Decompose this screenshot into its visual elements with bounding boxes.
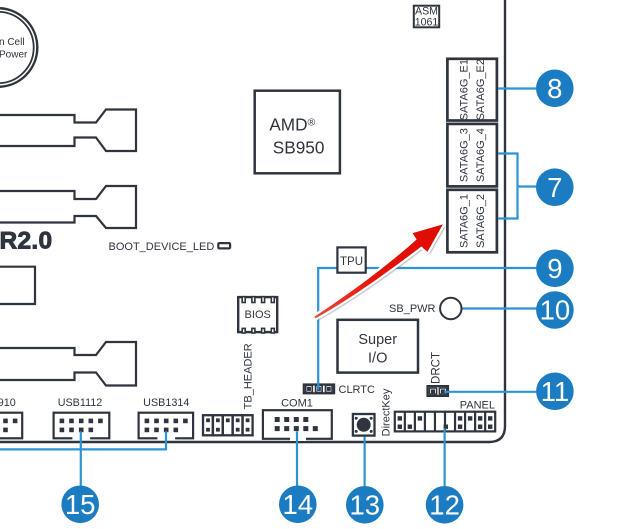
svg-text:SB_PWR: SB_PWR: [389, 303, 436, 315]
svg-text:SATA6G_2: SATA6G_2: [475, 194, 487, 248]
svg-text:n Cell: n Cell: [0, 37, 25, 48]
svg-text:Power: Power: [0, 49, 28, 60]
svg-text:USB910: USB910: [0, 397, 16, 409]
svg-text:12: 12: [429, 490, 460, 521]
svg-text:15: 15: [65, 489, 96, 520]
svg-text:PANEL: PANEL: [460, 399, 495, 411]
svg-text:USB1112: USB1112: [58, 397, 103, 409]
svg-text:SATA6G_E1: SATA6G_E1: [459, 59, 471, 120]
svg-text:10: 10: [540, 295, 571, 326]
svg-text:14: 14: [283, 489, 314, 520]
svg-text:DirectKey: DirectKey: [381, 388, 393, 436]
svg-text:7: 7: [547, 172, 562, 203]
svg-text:CLRTC: CLRTC: [339, 384, 376, 396]
svg-text:I/O: I/O: [368, 350, 387, 366]
svg-text:SATA6G_E2: SATA6G_E2: [475, 59, 487, 120]
svg-text:SB950: SB950: [273, 137, 325, 157]
svg-text:SATA6G_4: SATA6G_4: [475, 128, 487, 182]
svg-text:11: 11: [541, 376, 570, 407]
svg-text:USB1314: USB1314: [143, 397, 189, 409]
svg-text:13: 13: [350, 490, 381, 521]
svg-text:TPU: TPU: [340, 256, 363, 268]
svg-text:DRCT: DRCT: [430, 352, 442, 384]
svg-text:BOOT_DEVICE_LED: BOOT_DEVICE_LED: [109, 241, 215, 253]
svg-text:COM1: COM1: [281, 398, 313, 410]
svg-text:R2.0: R2.0: [0, 227, 52, 254]
svg-text:8: 8: [547, 73, 562, 104]
svg-text:Super: Super: [358, 332, 397, 348]
svg-text:BIOS: BIOS: [245, 309, 271, 321]
svg-text:SATA6G_1: SATA6G_1: [459, 194, 471, 248]
svg-text:1061: 1061: [415, 17, 439, 29]
svg-text:9: 9: [547, 253, 562, 284]
svg-text:SATA6G_3: SATA6G_3: [459, 128, 471, 182]
svg-text:TB_HEADER: TB_HEADER: [242, 343, 254, 409]
